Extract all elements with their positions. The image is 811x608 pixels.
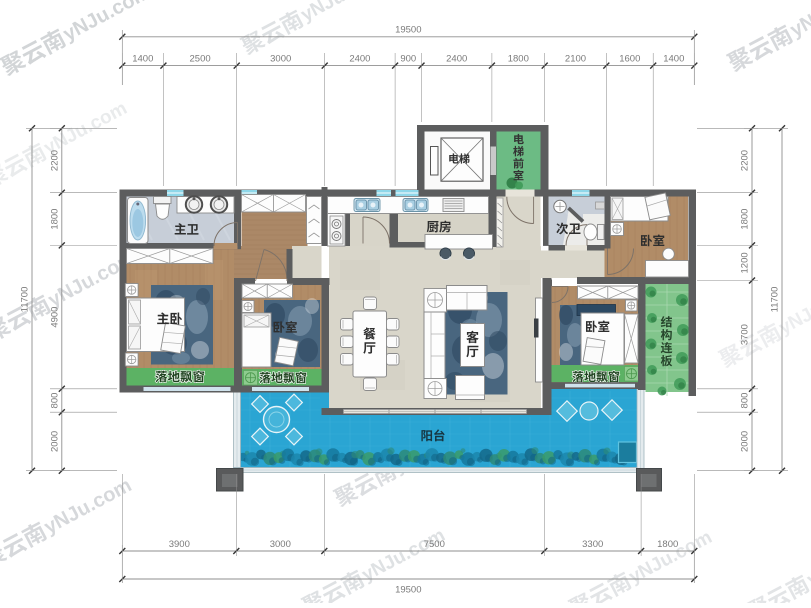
svg-text:4900: 4900 [50,307,61,328]
svg-text:1600: 1600 [619,54,640,65]
svg-text:2400: 2400 [446,54,467,65]
svg-text:1800: 1800 [50,209,61,230]
svg-text:1800: 1800 [508,54,529,65]
svg-text:2200: 2200 [740,150,751,171]
svg-text:2200: 2200 [50,150,61,171]
svg-text:19500: 19500 [395,585,421,596]
svg-text:3900: 3900 [169,539,190,550]
svg-text:1400: 1400 [663,54,684,65]
svg-text:800: 800 [50,393,61,409]
svg-text:2000: 2000 [50,431,61,452]
svg-text:2100: 2100 [565,54,586,65]
svg-text:3000: 3000 [270,539,291,550]
svg-text:3000: 3000 [270,54,291,65]
svg-text:11700: 11700 [770,287,781,313]
svg-text:1800: 1800 [740,209,751,230]
svg-text:19500: 19500 [395,25,421,36]
svg-text:2400: 2400 [349,54,370,65]
svg-text:800: 800 [740,393,751,409]
svg-text:3700: 3700 [740,324,751,345]
svg-text:7500: 7500 [424,539,445,550]
svg-text:900: 900 [400,54,416,65]
svg-text:1800: 1800 [657,539,678,550]
svg-text:1200: 1200 [740,252,751,273]
svg-text:3300: 3300 [582,539,603,550]
svg-text:2500: 2500 [190,54,211,65]
svg-text:11700: 11700 [20,287,31,313]
svg-text:1400: 1400 [132,54,153,65]
svg-text:2000: 2000 [740,431,751,452]
